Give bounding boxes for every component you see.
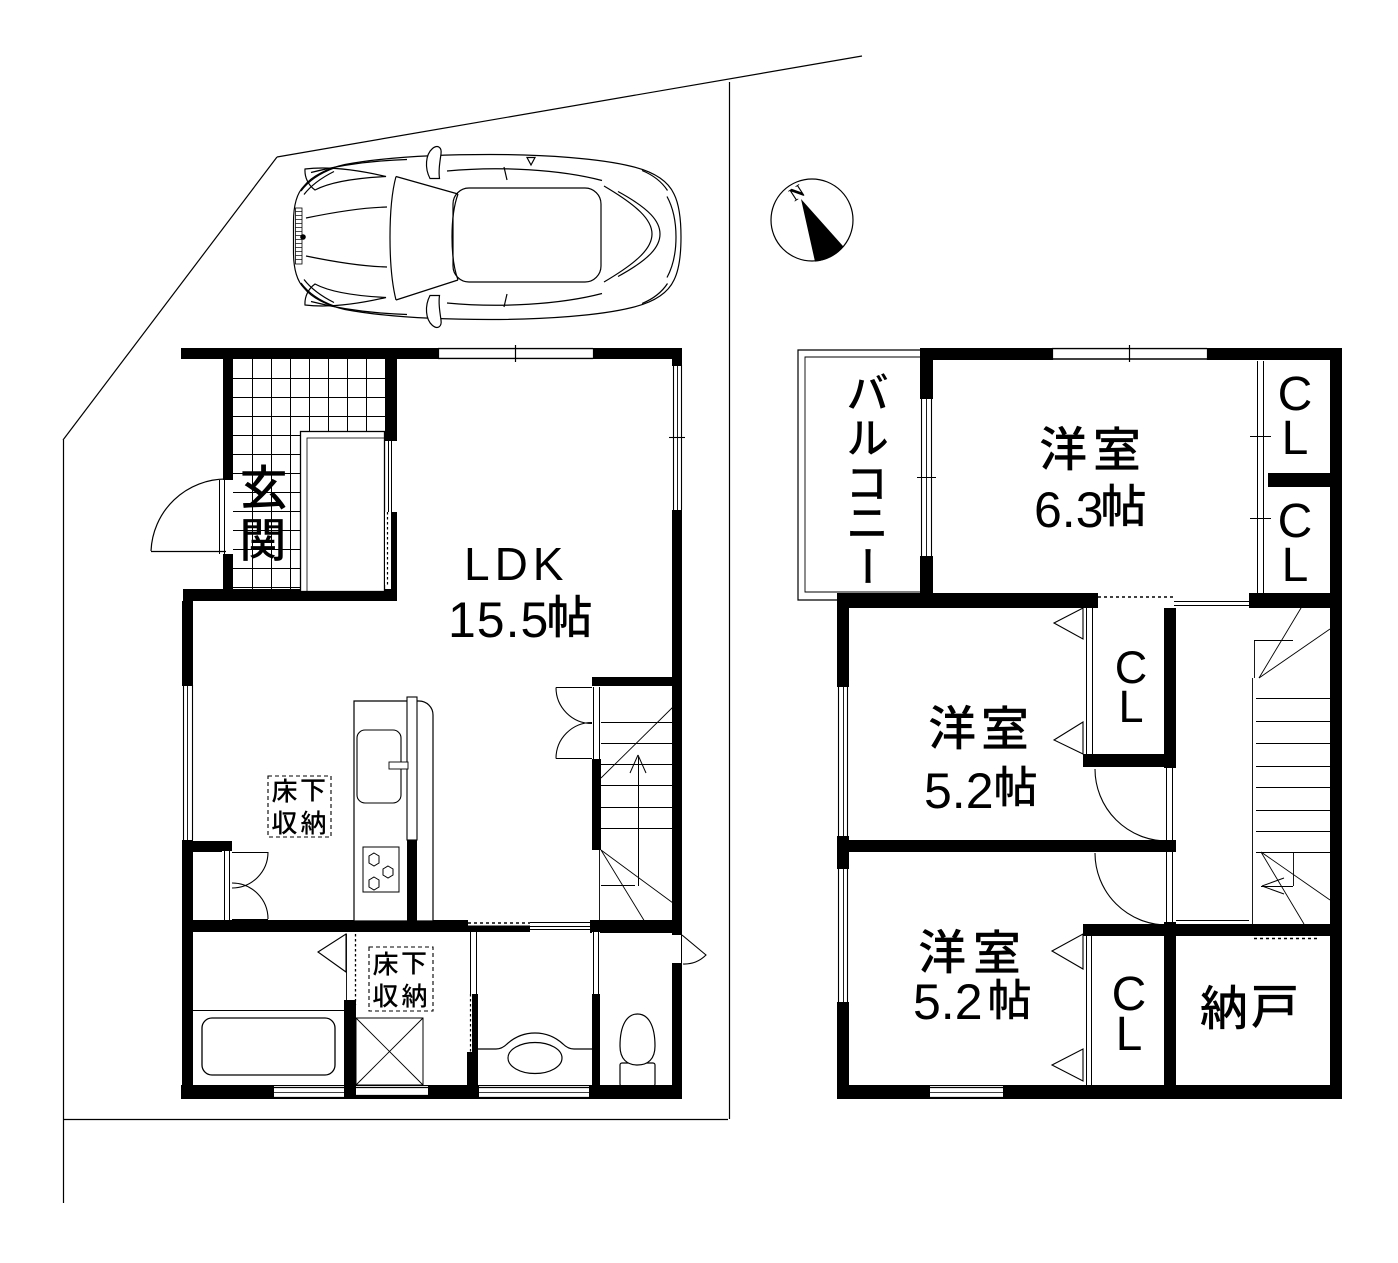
svg-text:L: L xyxy=(1116,1008,1143,1061)
svg-text:N: N xyxy=(786,181,809,206)
svg-text:LDK: LDK xyxy=(464,538,568,590)
svg-text:6.3: 6.3 xyxy=(1034,482,1104,538)
svg-text:5.2: 5.2 xyxy=(924,763,994,819)
svg-text:L: L xyxy=(1282,412,1309,465)
svg-text:L: L xyxy=(1118,681,1143,732)
svg-text:L: L xyxy=(1282,539,1309,592)
svg-text:15.5: 15.5 xyxy=(448,592,549,648)
svg-text:5.2: 5.2 xyxy=(913,974,983,1030)
